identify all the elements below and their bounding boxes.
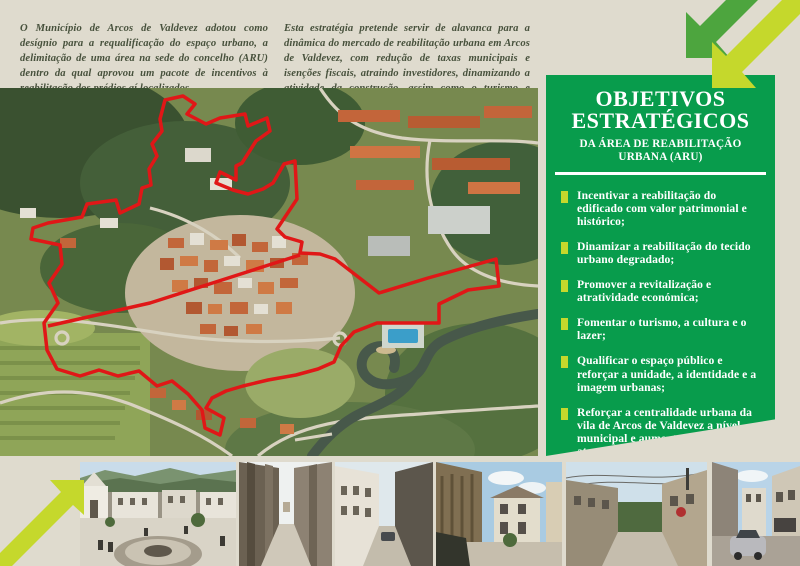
derelict-building-photo [436,462,562,566]
swimming-pool [388,329,418,343]
objective-item: Promover a revitalização e atratividade … [561,278,765,304]
objective-text: Qualificar o espaço público e reforçar a… [577,354,765,393]
panel-subtitle: DA ÁREA DE REABILITAÇÃO URBANA (ARU) [546,138,775,164]
objective-text: Dinamizar a reabilitação do tecido urban… [577,240,765,266]
panel-subtitle-line2: URBANA (ARU) [546,151,775,164]
arrow-down-left-icon [660,0,800,92]
objectives-list: Incentivar a reabilitação do edificado c… [546,189,775,459]
panel-subtitle-line1: DA ÁREA DE REABILITAÇÃO [546,138,775,151]
arrow-up-right-icon [0,452,92,566]
objective-text: Incentivar a reabilitação do edificado c… [577,189,765,228]
intro-paragraph-left: O Município de Arcos de Valdevez adotou … [20,21,268,96]
objective-text: Reforçar a centralidade urbana da vila d… [577,406,765,458]
narrow-street-photo [239,462,332,566]
aerial-map [0,88,538,456]
street-buildings-photo [335,462,433,566]
bullet-marker-icon [561,242,568,254]
town-square-fountain-photo [80,462,236,566]
panel-title: OBJETIVOS ESTRATÉGICOS [546,88,775,133]
objective-item: Qualificar o espaço público e reforçar a… [561,354,765,393]
panel-divider [555,172,766,175]
objective-text: Promover a revitalização e atratividade … [577,278,765,304]
objective-item: Incentivar a reabilitação do edificado c… [561,189,765,228]
street-with-car-photo [712,462,800,566]
bullet-marker-icon [561,280,568,292]
arrow-up-right-graphic [0,452,92,566]
arrow-down-left-graphic [660,0,800,92]
bullet-marker-icon [561,356,568,368]
bullet-marker-icon [561,408,568,420]
objective-text: Fomentar o turismo, a cultura e o lazer; [577,316,765,342]
bullet-marker-icon [561,191,568,203]
aerial-map-illustration [0,88,538,456]
bullet-marker-icon [561,318,568,330]
objective-item: Fomentar o turismo, a cultura e o lazer; [561,316,765,342]
panel-title-line2: ESTRATÉGICOS [546,110,775,132]
village-street-photo [566,462,707,566]
objective-item: Reforçar a centralidade urbana da vila d… [561,406,765,458]
objective-item: Dinamizar a reabilitação do tecido urban… [561,240,765,266]
objectives-panel: OBJETIVOS ESTRATÉGICOS DA ÁREA DE REABIL… [546,75,775,456]
